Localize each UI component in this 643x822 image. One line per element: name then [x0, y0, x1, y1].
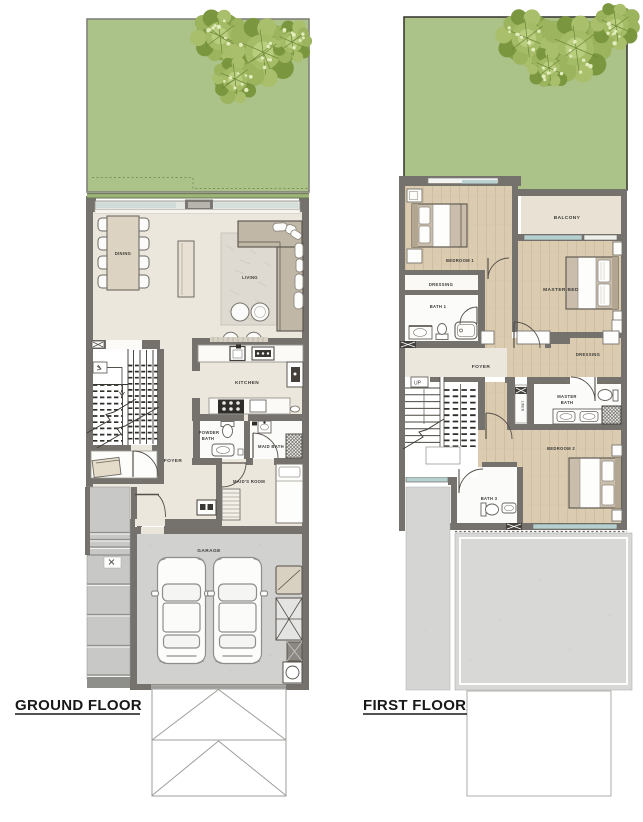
svg-text:MAID'S ROOM: MAID'S ROOM — [233, 479, 265, 484]
svg-text:BATH: BATH — [202, 436, 215, 441]
svg-text:GROUND FLOOR: GROUND FLOOR — [15, 697, 142, 714]
svg-text:KITCHEN: KITCHEN — [235, 380, 259, 386]
svg-text:BEDROOM 1: BEDROOM 1 — [446, 258, 474, 263]
svg-text:MASTER: MASTER — [557, 394, 576, 399]
svg-text:FOYER: FOYER — [472, 364, 491, 370]
svg-text:LINEN: LINEN — [521, 401, 525, 412]
svg-text:LIVING: LIVING — [242, 275, 258, 280]
svg-text:FOYER: FOYER — [164, 458, 183, 464]
svg-text:DRESSING: DRESSING — [576, 352, 600, 357]
svg-text:BEDROOM 2: BEDROOM 2 — [547, 446, 575, 451]
svg-text:UP: UP — [414, 381, 422, 387]
svg-text:POWDER: POWDER — [199, 430, 220, 435]
svg-text:DRESSING: DRESSING — [429, 282, 453, 287]
svg-text:MASTER BED: MASTER BED — [543, 287, 579, 293]
svg-text:BALCONY: BALCONY — [554, 215, 581, 221]
svg-text:DINING: DINING — [115, 251, 131, 256]
svg-text:FIRST FLOOR: FIRST FLOOR — [363, 697, 466, 714]
svg-text:BATH 1: BATH 1 — [430, 304, 447, 309]
svg-text:BATH: BATH — [561, 400, 574, 405]
svg-text:GARAGE: GARAGE — [197, 548, 221, 554]
svg-text:MAID BATH: MAID BATH — [258, 444, 284, 449]
svg-text:BATH 3: BATH 3 — [481, 496, 498, 501]
